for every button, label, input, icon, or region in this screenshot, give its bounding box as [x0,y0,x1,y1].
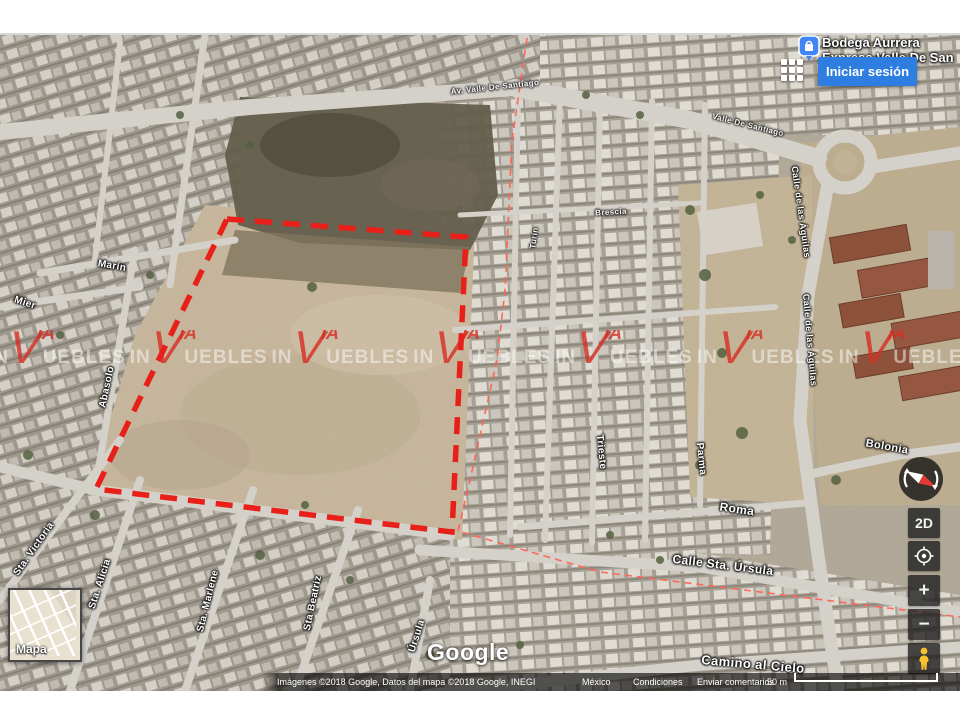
screenshot: INVIAUEBLESINVIAUEBLESINVIAUEBLESINVIAUE… [0,0,960,720]
attribution-imagery: Imágenes ©2018 Google, Datos del mapa ©2… [277,673,535,691]
parcel-overlay [0,35,960,691]
terms-link[interactable]: Condiciones [633,673,683,691]
view-2d-button[interactable]: 2D [908,508,940,538]
zoom-in-button[interactable]: + [908,575,940,606]
google-logo: Google [427,639,509,666]
parcel-dashed-outline [96,219,466,532]
attribution-region: México [582,673,611,691]
boundary-line [458,38,960,617]
scale-label: 50 m [767,673,787,691]
target-icon [914,546,934,566]
feedback-link[interactable]: Enviar comentarios [697,673,774,691]
attribution-bar: Imágenes ©2018 Google, Datos del mapa ©2… [262,673,960,691]
apps-grid-icon[interactable] [781,59,803,81]
pegman-icon [915,647,933,671]
minimap-label: Mapa [16,642,47,656]
scale-bar [794,673,938,682]
pegman-button[interactable] [908,643,940,674]
place-label-line1: Bodega Aurrera [822,35,954,50]
satellite-map[interactable]: INVIAUEBLESINVIAUEBLESINVIAUEBLESINVIAUE… [0,35,960,691]
signin-button[interactable]: Iniciar sesión [818,57,917,86]
compass-control[interactable] [898,456,944,502]
zoom-out-button[interactable]: − [908,609,940,640]
my-location-button[interactable] [908,541,940,571]
minimap-toggle[interactable]: Mapa [8,588,82,662]
